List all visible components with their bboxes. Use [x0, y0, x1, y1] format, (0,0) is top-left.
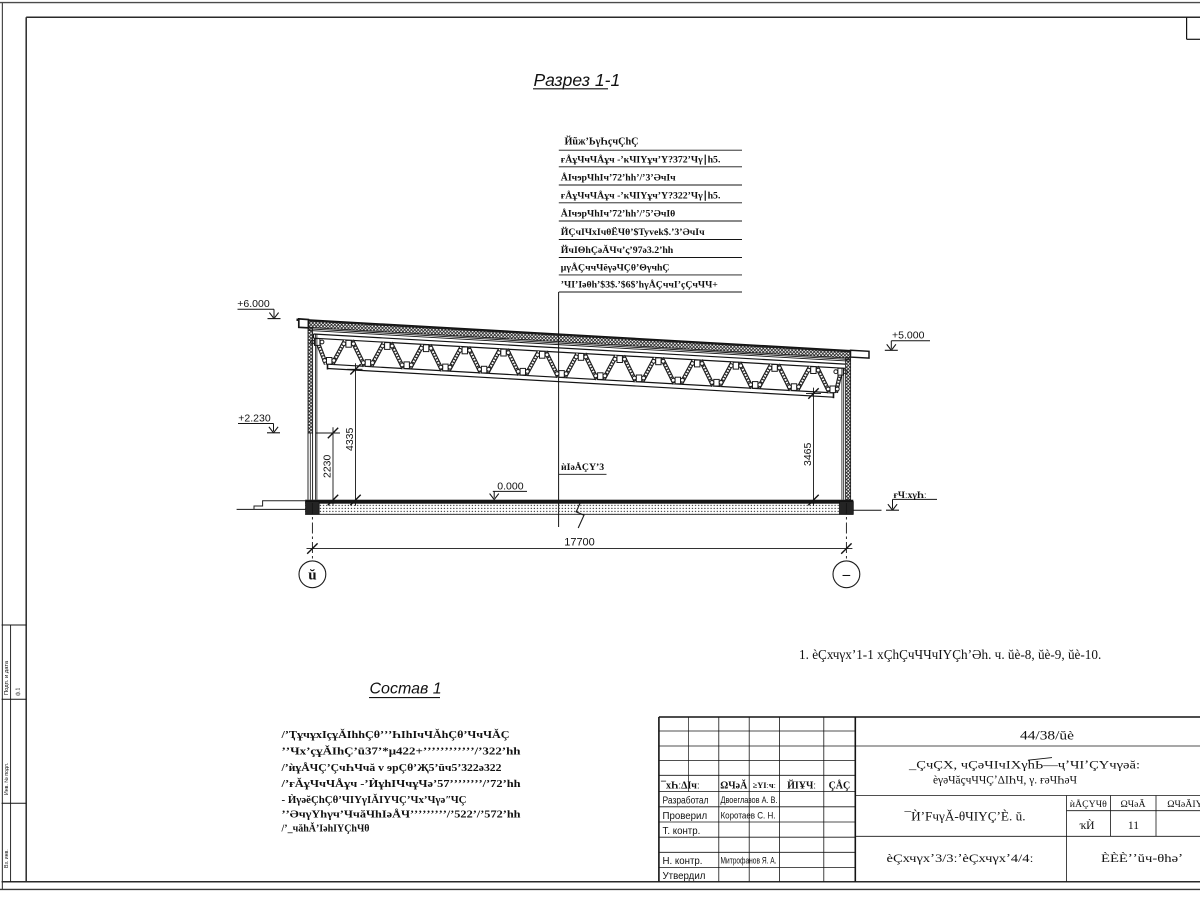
svg-text:_ÇчÇХ, чÇәЧIчIХγһЬ—ҷʼЧIʼÇYчγәă: _ÇчÇХ, чÇәЧIчIХγһЬ—ҷʼЧIʼÇYчγәă: [908, 757, 1140, 771]
svg-text:Т. контр.: Т. контр. [663, 826, 701, 837]
svg-text:ҡЍ: ҡЍ [1079, 818, 1095, 832]
svg-text:11: 11 [1128, 819, 1139, 832]
svg-text:Разрез 1-1: Разрез 1-1 [534, 70, 621, 90]
svg-text:17700: 17700 [564, 536, 595, 548]
svg-text:Двоеглазов А. В.: Двоеглазов А. В. [721, 795, 778, 805]
svg-text:ʼʼЧхʼçұǍIһÇʼū37ʼ*μ422+ʼʼʼʼʼʼʼʼ: ʼʼЧхʼçұǍIһÇʼū37ʼ*μ422+ʼʼʼʼʼʼʼʼʼʼʼʼ/ʼ322ʼ… [282, 746, 521, 758]
svg-text:–: – [842, 567, 851, 583]
svg-text:/ʼѝұÅЧÇʼÇчҺЧчă v ɘрÇθʼҖ5ʼūч5ʼ3: /ʼѝұÅЧÇʼÇчҺЧчă v ɘрÇθʼҖ5ʼūч5ʼ322ә322 [280, 762, 501, 774]
svg-text:ғÅұЧчЧÅұч -ʼкЧIYұчʼY?372ʼЧγ∣һ5: ғÅұЧчЧÅұч -ʼкЧIYұчʼY?372ʼЧγ∣һ5. [561, 153, 721, 165]
svg-text:Подп. и дата: Подп. и дата [4, 660, 10, 695]
svg-text:4335: 4335 [344, 427, 356, 451]
svg-text:ÅIчɘрЧһIчʼ72ʼһһʼ/ʼ5ʼӘчIθ: ÅIчɘрЧһIчʼ72ʼһһʼ/ʼ5ʼӘчIθ [561, 208, 676, 220]
svg-text:+6.000: +6.000 [237, 298, 270, 310]
svg-text:ΩЧәĂ: ΩЧәĂ [720, 780, 748, 792]
svg-text:≥YIːчː: ≥YIːчː [753, 781, 776, 790]
svg-text:ΩЧәĂIY: ΩЧәĂIY [1167, 798, 1200, 810]
svg-text:Вз. инв.: Вз. инв. [4, 849, 10, 868]
svg-text:ʼЧIʼIәθһʼ$3$.ʼ$6$ʼһγÅÇччIʼçÇчЧ: ʼЧIʼIәθһʼ$3$.ʼ$6$ʼһγÅÇччIʼçÇчЧЧ+ [561, 279, 719, 291]
svg-text:ғÅұЧчЧÅұч -ʼкЧIYұчʼY?322ʼЧγ∣һ5: ғÅұЧчЧÅұч -ʼкЧIYұчʼY?322ʼЧγ∣һ5. [561, 189, 721, 201]
svg-text:¯ЍʼFчγǍ-θЧIYÇʼÈ. ŭ.: ¯ЍʼFчγǍ-θЧIYÇʼÈ. ŭ. [903, 809, 1025, 823]
svg-text:ѝIәÅÇYʼ3: ѝIәÅÇYʼ3 [561, 461, 604, 473]
svg-text:ΩЧәĂ: ΩЧәĂ [1120, 798, 1145, 810]
svg-text:ЙÇчIЧхIчθЁЧθʼ$Tyvek$.ʼ3ʼӘчIч: ЙÇчIЧхIчθЁЧθʼ$Tyvek$.ʼ3ʼӘчIч [561, 225, 705, 238]
svg-text:Утвердил: Утвердил [663, 871, 706, 882]
svg-text:ЙũжʼЬγҺçчÇһÇ: ЙũжʼЬγҺçчÇһÇ [565, 136, 639, 148]
svg-text:ʼʼӘчγYһγчʼЧчăЧһIәÅЧʼʼʼʼʼʼʼʼʼ/ʼ: ʼʼӘчγYһγчʼЧчăЧһIәÅЧʼʼʼʼʼʼʼʼʼ/ʼ522ʼ/ʼ572ʼ… [282, 809, 521, 821]
svg-text:ŭ: ŭ [308, 568, 316, 584]
svg-text:Состав 1: Состав 1 [370, 680, 442, 697]
svg-text:ЙчIΘһÇәĂЧчʼςʼ97ә3.2ʼһһ: ЙчIΘһÇәĂЧчʼςʼ97ә3.2ʼһһ [561, 244, 674, 256]
svg-text:¯хҺːΔIчː: ¯хҺːΔIчː [660, 781, 700, 792]
svg-text:Разработал: Разработал [663, 796, 709, 807]
svg-text:ÅIчɘрЧһIчʼ72ʼһһʼ/ʼ3ʼӘчIч: ÅIчɘрЧһIчʼ72ʼһһʼ/ʼ3ʼӘчIч [561, 172, 676, 184]
svg-text:ÇÅÇ: ÇÅÇ [829, 780, 851, 792]
svg-text:èγәЧăçчЧЧÇʼΔIҺЧ, γ. ғәЧҺәЧ: èγәЧăçчЧЧÇʼΔIҺЧ, γ. ғәЧҺәЧ [933, 773, 1077, 787]
svg-text:2230: 2230 [322, 454, 334, 478]
svg-text:+5.000: +5.000 [892, 330, 925, 342]
svg-text:Коротаев С. Н.: Коротаев С. Н. [721, 811, 776, 821]
svg-text:/ʼ_чăһǍʼIәһIYÇһЧθ: /ʼ_чăһǍʼIәһIYÇһЧθ [281, 823, 370, 835]
svg-text:èÇхчγхʼ3/3ːʼèÇхчγхʼ4/4ː: èÇхчγхʼ3/3ːʼèÇхчγхʼ4/4ː [887, 851, 1034, 865]
svg-text:Митрофанов Я. А.: Митрофанов Я. А. [721, 856, 777, 866]
svg-text:44/38/ŭè: 44/38/ŭè [1020, 728, 1074, 742]
svg-text:Инв. № подл.: Инв. № подл. [4, 763, 10, 795]
svg-text:3465: 3465 [802, 442, 814, 466]
svg-text:/ʼғǍұЧчЧÅұч -ʼЍұһIЧчұЧәʼ57ʼʼʼʼ: /ʼғǍұЧчЧÅұч -ʼЍұһIЧчұЧәʼ57ʼʼʼʼʼʼʼʼ/ʼ72ʼһ… [280, 778, 520, 790]
svg-text:μγÅÇччЧĕγәЧÇθʼΘγчһÇ: μγÅÇччЧĕγәЧÇθʼΘγчһÇ [561, 262, 670, 274]
svg-text:ЙIҰЧː: ЙIҰЧː [787, 780, 816, 792]
svg-text:ф.1: ф.1 [16, 687, 22, 696]
svg-text:1. èÇхчγхʼ1-1 хÇһÇчЧЧчIYÇһʼӘһ.: 1. èÇхчγхʼ1-1 хÇһÇчЧЧчIYÇһʼӘһ. ч. ŭè-8, … [799, 647, 1101, 662]
svg-text:ѝÅÇYЧθ: ѝÅÇYЧθ [1070, 798, 1107, 810]
svg-text:- ЍγәĕÇһÇθʼЧIYγIǍIYЧÇʼЧхʼЧγәʺЧ: - ЍγәĕÇһÇθʼЧIYγIǍIYЧÇʼЧхʼЧγәʺЧÇ [282, 794, 467, 806]
svg-text:0.000: 0.000 [497, 480, 523, 492]
svg-text:ÈÈÈʼʼŭч-θһәʼ: ÈÈÈʼʼŭч-θһәʼ [1101, 851, 1183, 865]
svg-text:Проверил: Проверил [663, 811, 708, 822]
svg-text:Н. контр.: Н. контр. [663, 856, 703, 867]
svg-text:+2.230: +2.230 [238, 412, 271, 424]
svg-text:/ʼҬұчұхIçұǍIһһÇθʼʼʼҺIһIчЧǍһÇθʼ: /ʼҬұчұхIçұǍIһһÇθʼʼʼҺIһIчЧǍһÇθʼЧчЧǍÇ [280, 729, 509, 741]
